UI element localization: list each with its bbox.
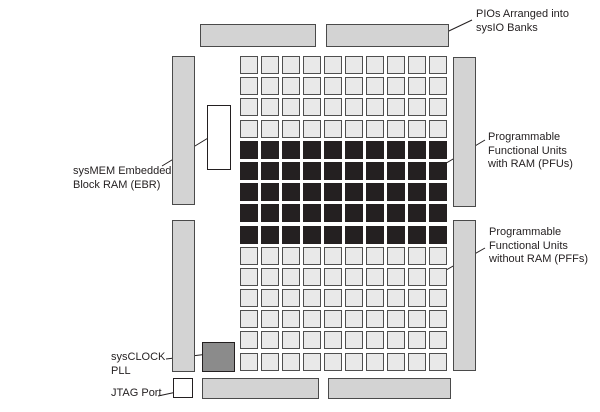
pff-cell	[345, 268, 363, 286]
pff-cell	[345, 247, 363, 265]
pff-cell	[240, 98, 258, 116]
pff-cell	[366, 247, 384, 265]
pff-cell	[345, 56, 363, 74]
pio-banks-label: PIOs Arranged into sysIO Banks	[476, 8, 569, 35]
pfu-cell	[366, 141, 384, 159]
pff-cell	[387, 353, 405, 371]
pff-cell	[261, 353, 279, 371]
pff-cell	[303, 98, 321, 116]
pfu-cell	[261, 204, 279, 222]
pff-cell	[282, 310, 300, 328]
pfu-cell	[324, 183, 342, 201]
pff-cell	[345, 289, 363, 307]
pff-cell	[345, 331, 363, 349]
pff-cell	[387, 247, 405, 265]
pfu-cell	[366, 226, 384, 244]
pff-cell	[387, 331, 405, 349]
pff-cell	[324, 268, 342, 286]
pff-cell	[366, 56, 384, 74]
pff-cell	[240, 310, 258, 328]
sysio-bank-left-lower	[172, 220, 195, 372]
pfu-cell	[366, 162, 384, 180]
pff-label-line2: Functional Units	[489, 240, 588, 254]
pfu-cell	[240, 226, 258, 244]
pff-label: Programmable Functional Units without RA…	[489, 226, 588, 267]
pff-cell	[324, 120, 342, 138]
pff-cell	[261, 331, 279, 349]
pff-cell	[366, 268, 384, 286]
sysio-bank-top-right	[326, 24, 449, 47]
pfu-cell	[366, 204, 384, 222]
pfu-cell	[282, 162, 300, 180]
pio-banks-label-line1: PIOs Arranged into	[476, 8, 569, 22]
pff-cell	[408, 310, 426, 328]
pff-cell	[366, 353, 384, 371]
pff-cell	[303, 353, 321, 371]
pfu-cell	[324, 141, 342, 159]
pff-cell	[240, 247, 258, 265]
pff-cell	[429, 98, 447, 116]
pff-cell	[240, 289, 258, 307]
pff-cell	[345, 353, 363, 371]
pff-cell	[366, 331, 384, 349]
pff-cell	[429, 268, 447, 286]
pff-cell	[408, 56, 426, 74]
pff-cell	[366, 310, 384, 328]
pfu-cell	[387, 204, 405, 222]
pfu-cell	[303, 226, 321, 244]
sysio-bank-right-upper	[453, 57, 476, 207]
pff-cell	[282, 247, 300, 265]
pff-cell	[324, 98, 342, 116]
pfu-cell	[408, 141, 426, 159]
pff-cell	[261, 98, 279, 116]
pfu-cell	[261, 162, 279, 180]
pff-cell	[303, 331, 321, 349]
pfu-cell	[240, 183, 258, 201]
pff-cell	[408, 247, 426, 265]
pff-cell	[387, 56, 405, 74]
pff-cell	[366, 77, 384, 95]
pff-cell	[387, 310, 405, 328]
jtag-port-label: JTAG Port	[111, 387, 162, 401]
pff-cell	[303, 77, 321, 95]
pff-cell	[324, 77, 342, 95]
pff-cell	[345, 310, 363, 328]
pfu-cell	[303, 162, 321, 180]
pff-label-line1: Programmable	[489, 226, 588, 240]
pff-cell	[429, 331, 447, 349]
pfu-cell	[345, 141, 363, 159]
pff-cell	[240, 56, 258, 74]
pff-cell	[261, 310, 279, 328]
pfu-cell	[429, 226, 447, 244]
pff-cell	[429, 247, 447, 265]
pfu-label-line3: with RAM (PFUs)	[488, 158, 573, 172]
pff-cell	[303, 56, 321, 74]
pff-cell	[282, 98, 300, 116]
pff-cell	[282, 331, 300, 349]
pfu-cell	[303, 204, 321, 222]
pff-cell	[240, 268, 258, 286]
pfu-cell	[261, 183, 279, 201]
pff-cell	[345, 77, 363, 95]
pfu-cell	[282, 204, 300, 222]
pff-cell	[429, 56, 447, 74]
ebr-label: sysMEM Embedded Block RAM (EBR)	[73, 165, 171, 192]
pff-cell	[240, 353, 258, 371]
pff-cell	[408, 289, 426, 307]
pff-cell	[429, 289, 447, 307]
sysclock-pll-label-line2: PLL	[111, 365, 165, 379]
pfu-pff-grid	[240, 56, 447, 371]
pff-cell	[387, 77, 405, 95]
pff-cell	[408, 353, 426, 371]
pff-cell	[429, 77, 447, 95]
pff-cell	[429, 310, 447, 328]
pff-cell	[324, 247, 342, 265]
pfu-cell	[345, 204, 363, 222]
pff-cell	[408, 77, 426, 95]
pff-cell	[261, 56, 279, 74]
pff-cell	[387, 120, 405, 138]
pfu-cell	[324, 162, 342, 180]
pfu-cell	[345, 226, 363, 244]
pfu-cell	[408, 183, 426, 201]
pff-cell	[408, 268, 426, 286]
pfu-cell	[408, 162, 426, 180]
pff-cell	[366, 289, 384, 307]
pfu-cell	[387, 162, 405, 180]
pff-cell	[345, 98, 363, 116]
pff-cell	[261, 268, 279, 286]
pfu-label: Programmable Functional Units with RAM (…	[488, 131, 573, 172]
pfu-cell	[261, 141, 279, 159]
sysclock-pll-label: sysCLOCK PLL	[111, 351, 165, 378]
pfu-cell	[240, 162, 258, 180]
pfu-cell	[387, 183, 405, 201]
pfu-cell	[240, 204, 258, 222]
pff-cell	[324, 353, 342, 371]
pff-cell	[282, 268, 300, 286]
pff-cell	[366, 120, 384, 138]
pff-cell	[408, 120, 426, 138]
pff-cell	[303, 310, 321, 328]
pfu-cell	[282, 141, 300, 159]
pfu-cell	[324, 204, 342, 222]
pff-label-line3: without RAM (PFFs)	[489, 253, 588, 267]
pfu-cell	[429, 183, 447, 201]
pfu-cell	[429, 141, 447, 159]
pfu-cell	[387, 226, 405, 244]
pfu-cell	[303, 141, 321, 159]
sysclock-pll-block	[202, 342, 235, 372]
ebr-block	[207, 105, 231, 170]
pff-cell	[240, 120, 258, 138]
pff-cell	[282, 120, 300, 138]
pfu-cell	[408, 226, 426, 244]
pfu-cell	[429, 204, 447, 222]
pfu-cell	[345, 183, 363, 201]
ebr-label-line2: Block RAM (EBR)	[73, 179, 171, 193]
pff-cell	[429, 120, 447, 138]
ebr-label-line1: sysMEM Embedded	[73, 165, 171, 179]
sysio-bank-top-left	[200, 24, 316, 47]
sysio-bank-bottom-left	[202, 378, 319, 399]
pff-cell	[387, 98, 405, 116]
pff-cell	[366, 98, 384, 116]
pfu-label-line2: Functional Units	[488, 145, 573, 159]
pff-cell	[282, 56, 300, 74]
pff-cell	[408, 98, 426, 116]
pff-cell	[240, 331, 258, 349]
pfu-cell	[345, 162, 363, 180]
pfu-cell	[282, 226, 300, 244]
pfu-cell	[282, 183, 300, 201]
pfu-cell	[240, 141, 258, 159]
pff-cell	[345, 120, 363, 138]
pff-cell	[261, 289, 279, 307]
pff-cell	[282, 289, 300, 307]
sysio-bank-bottom-right	[328, 378, 451, 399]
pff-cell	[261, 120, 279, 138]
jtag-port-block	[173, 378, 193, 398]
pfu-cell	[429, 162, 447, 180]
pff-cell	[240, 77, 258, 95]
pfu-cell	[303, 183, 321, 201]
pff-cell	[303, 289, 321, 307]
pfu-cell	[366, 183, 384, 201]
sysio-bank-left-upper	[172, 56, 195, 205]
pfu-cell	[324, 226, 342, 244]
pfu-cell	[261, 226, 279, 244]
pio-banks-label-line2: sysIO Banks	[476, 22, 569, 36]
pfu-label-line1: Programmable	[488, 131, 573, 145]
pff-cell	[324, 310, 342, 328]
pff-cell	[324, 56, 342, 74]
pfu-cell	[387, 141, 405, 159]
pff-cell	[408, 331, 426, 349]
pff-cell	[387, 289, 405, 307]
sysio-bank-right-lower	[453, 220, 476, 371]
pff-cell	[261, 247, 279, 265]
pff-cell	[324, 331, 342, 349]
pff-cell	[261, 77, 279, 95]
pff-cell	[303, 120, 321, 138]
pff-cell	[324, 289, 342, 307]
pff-cell	[282, 353, 300, 371]
pff-cell	[282, 77, 300, 95]
pff-cell	[303, 247, 321, 265]
fpga-floorplan-diagram: PIOs Arranged into sysIO Banks Programma…	[0, 0, 600, 412]
pff-cell	[303, 268, 321, 286]
pfu-cell	[408, 204, 426, 222]
jtag-port-label-line1: JTAG Port	[111, 387, 162, 401]
pff-cell	[429, 353, 447, 371]
sysclock-pll-label-line1: sysCLOCK	[111, 351, 165, 365]
pff-cell	[387, 268, 405, 286]
